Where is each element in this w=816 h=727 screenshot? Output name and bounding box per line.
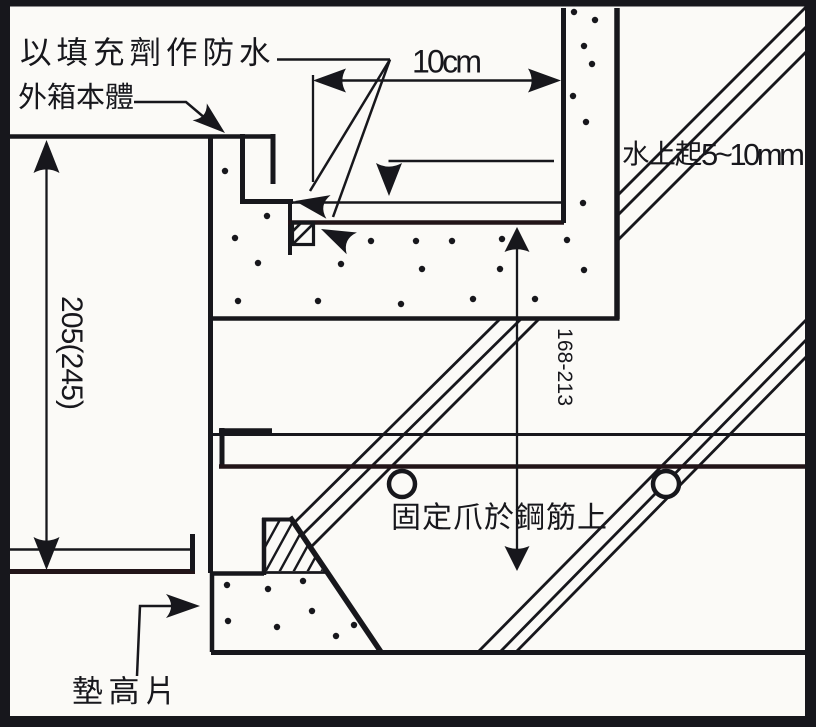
svg-text:168-213: 168-213 (553, 328, 576, 406)
svg-text:205(245): 205(245) (55, 296, 88, 410)
svg-text:5~10mm: 5~10mm (701, 137, 805, 172)
svg-text:10cm: 10cm (412, 44, 482, 80)
